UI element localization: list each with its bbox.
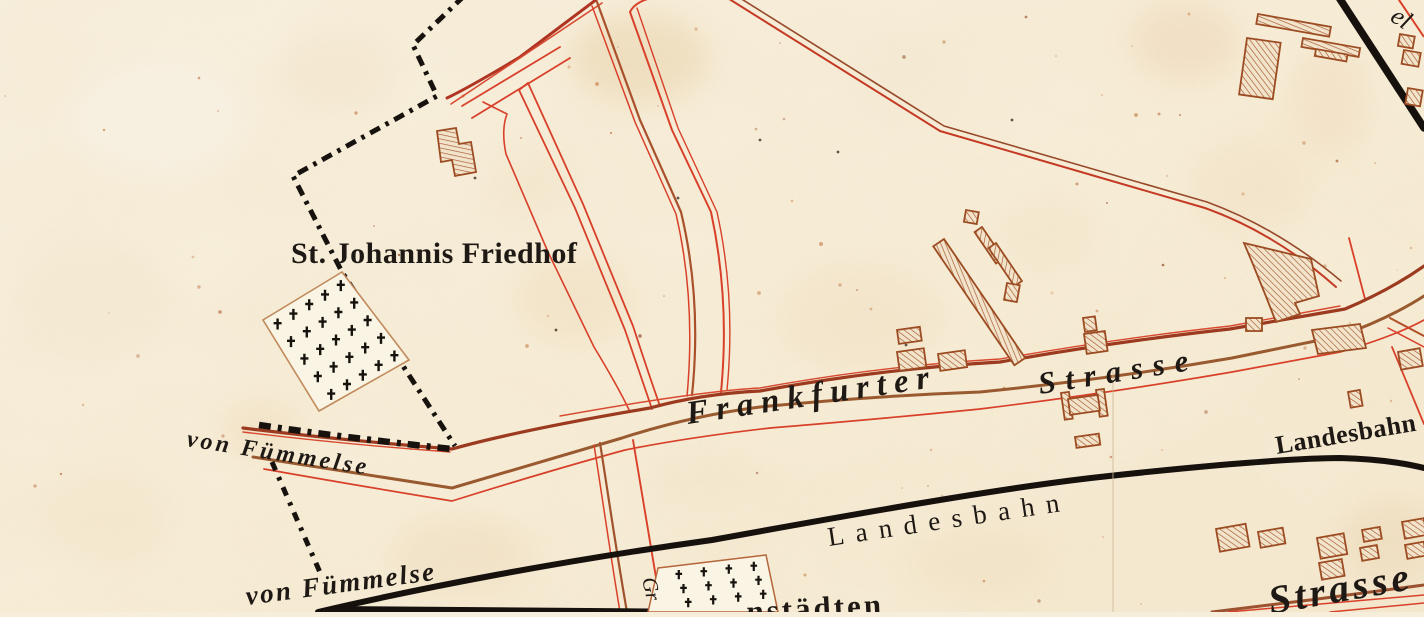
svg-text:St. Johannis Friedhof: St. Johannis Friedhof xyxy=(291,237,578,270)
